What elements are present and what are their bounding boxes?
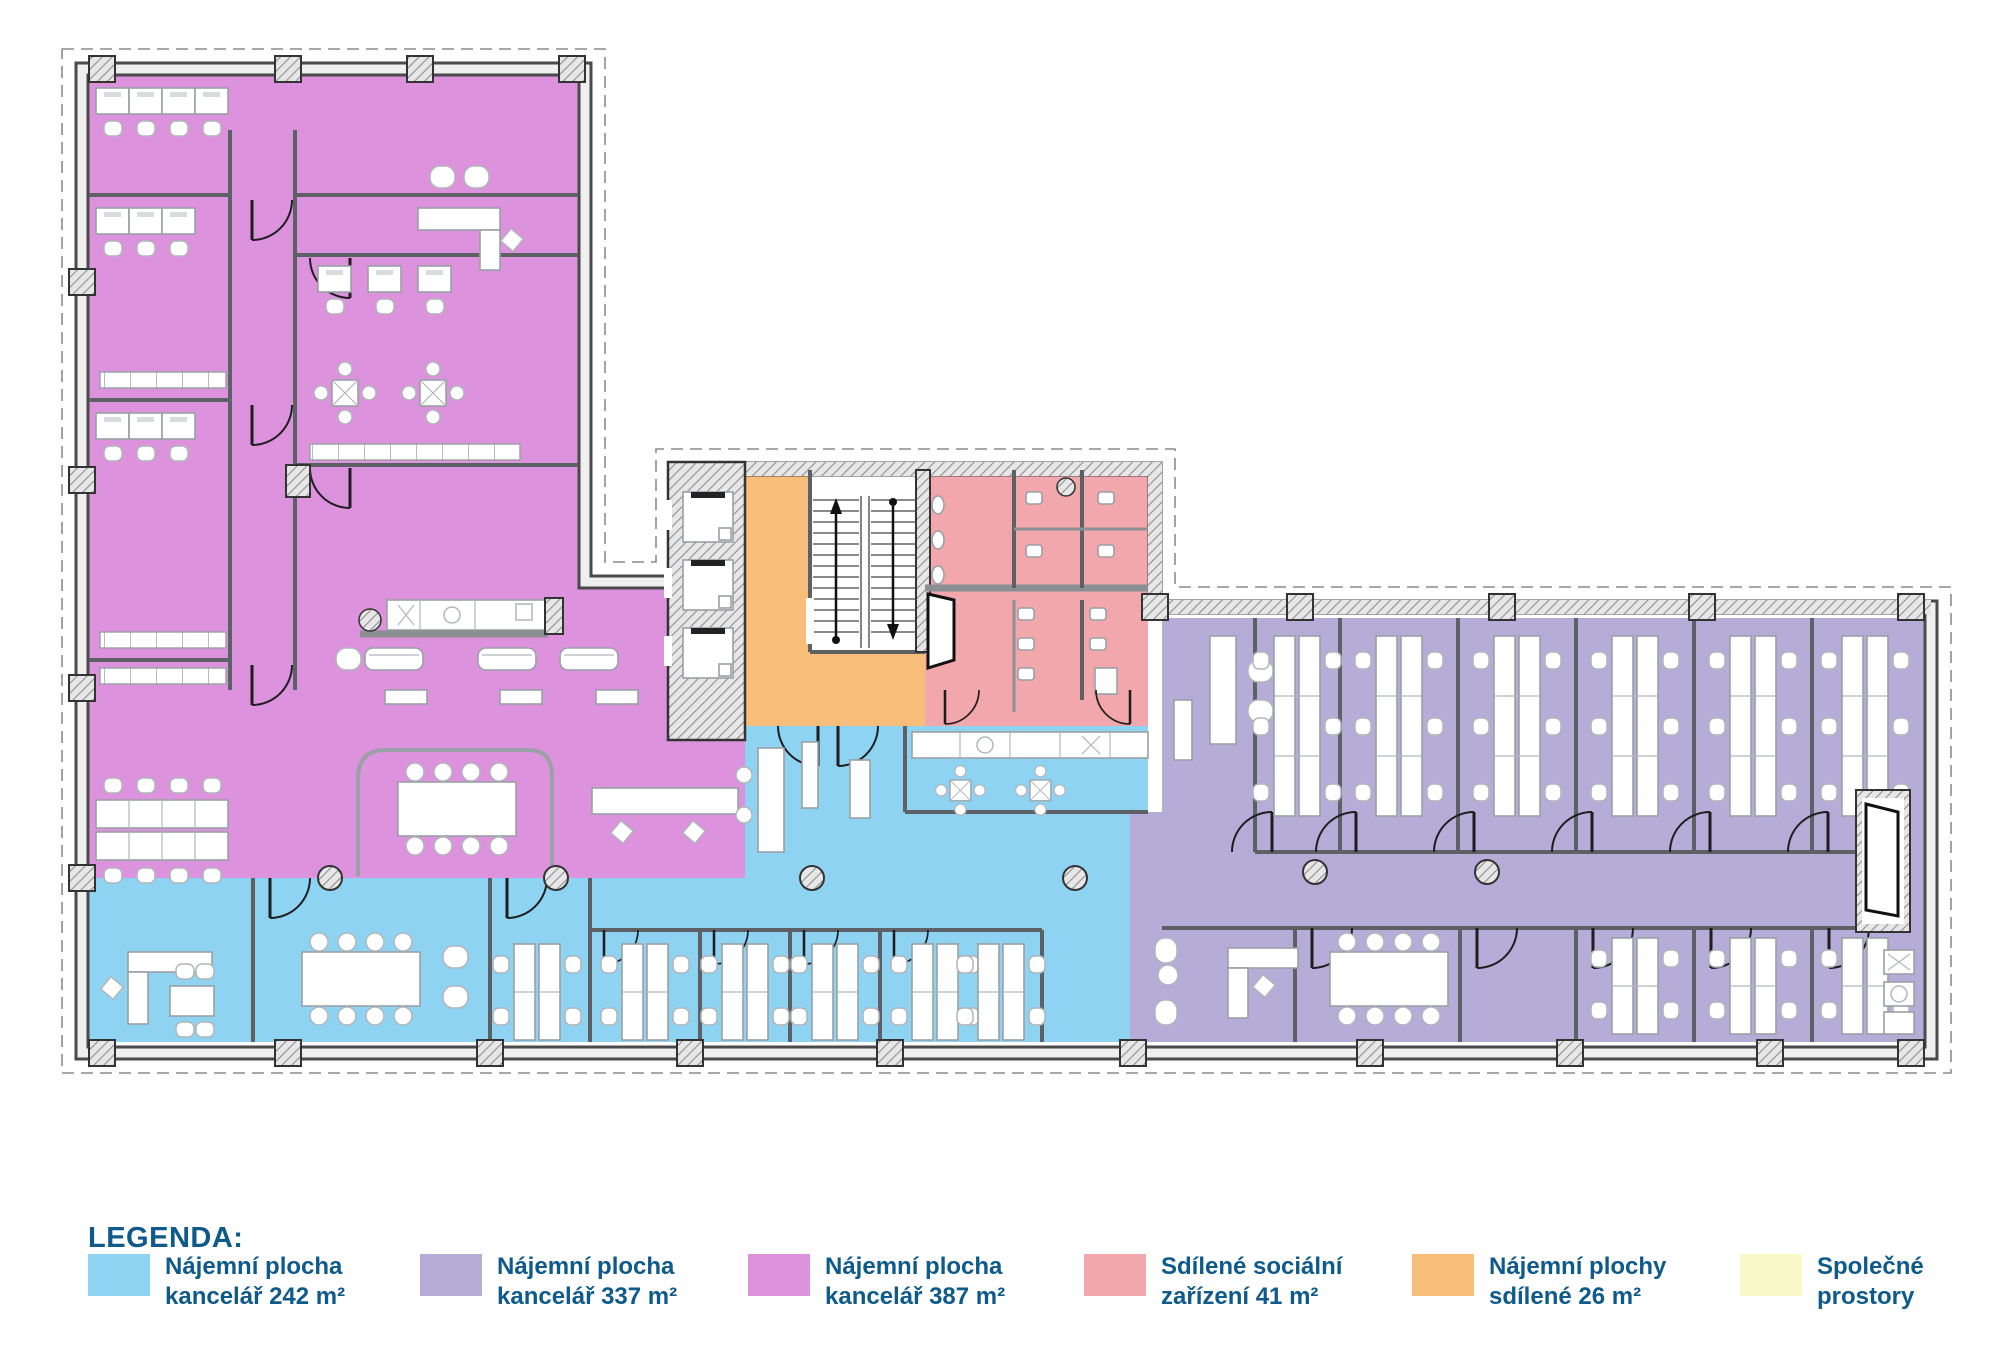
elevator-cab (683, 628, 733, 678)
legend-label-line2: kancelář 387 m² (825, 1282, 1005, 1312)
toilet (1098, 545, 1114, 557)
legend-swatch-pink (1084, 1254, 1146, 1296)
legend-item-office-387: Nájemní plochakancelář 387 m² (748, 1252, 1078, 1322)
legend-label-line2: zařízení 41 m² (1161, 1282, 1342, 1312)
toilet (1026, 492, 1042, 504)
legend-item-sanitary: Sdílené sociálnízařízení 41 m² (1084, 1252, 1414, 1322)
legend-item-office-337: Nájemní plochakancelář 337 m² (420, 1252, 750, 1322)
elevator-cab (683, 560, 733, 610)
sink (1018, 638, 1034, 650)
legend-label-line2: sdílené 26 m² (1489, 1282, 1666, 1312)
legend-label-line1: Nájemní plochy (1489, 1252, 1666, 1282)
legend-label-line1: Nájemní plocha (825, 1252, 1005, 1282)
floor-plan (0, 0, 2000, 1160)
sink (1018, 668, 1034, 680)
sink (1018, 608, 1034, 620)
legend-label-line2: kancelář 337 m² (497, 1282, 677, 1312)
toilet (1026, 545, 1042, 557)
legend-swatch-yellow (1740, 1254, 1802, 1296)
legend-swatch-lavender (420, 1254, 482, 1296)
fire-stair-niche (1856, 790, 1910, 932)
sofa (365, 648, 423, 670)
sofa (560, 648, 618, 670)
cleaning-closet-door (928, 594, 954, 668)
legend-swatch-blue (88, 1254, 150, 1296)
elevator-block (664, 462, 745, 740)
legend-label-line1: Nájemní plocha (497, 1252, 677, 1282)
sofa (478, 648, 536, 670)
stairwell-floor (810, 470, 922, 652)
legend-label-line1: Sdílené sociální (1161, 1252, 1342, 1282)
zones (89, 76, 1925, 1042)
sink (1090, 638, 1106, 650)
legend-label-line1: Společné (1817, 1252, 1924, 1282)
legend-label-line2: kancelář 242 m² (165, 1282, 345, 1312)
legend-swatch-magenta (748, 1254, 810, 1296)
legend-label-line2: prostory (1817, 1282, 1924, 1312)
legend-title: LEGENDA: (88, 1222, 243, 1255)
armchair (336, 648, 361, 670)
elevator-cab (683, 492, 733, 542)
legend-swatch-orange (1412, 1254, 1474, 1296)
legend-item-shared: Nájemní plochysdílené 26 m² (1412, 1252, 1742, 1322)
floorplan-page: { "colors": { "blue": "#8fd3f2", "lavend… (0, 0, 2000, 1365)
legend-label-line1: Nájemní plocha (165, 1252, 345, 1282)
legend-item-office-242: Nájemní plochakancelář 242 m² (88, 1252, 418, 1322)
legend-item-common: Společnéprostory (1740, 1252, 2000, 1322)
wall-kitchen-strip (1884, 950, 1914, 1034)
toilet (1098, 492, 1114, 504)
sink (1090, 608, 1106, 620)
